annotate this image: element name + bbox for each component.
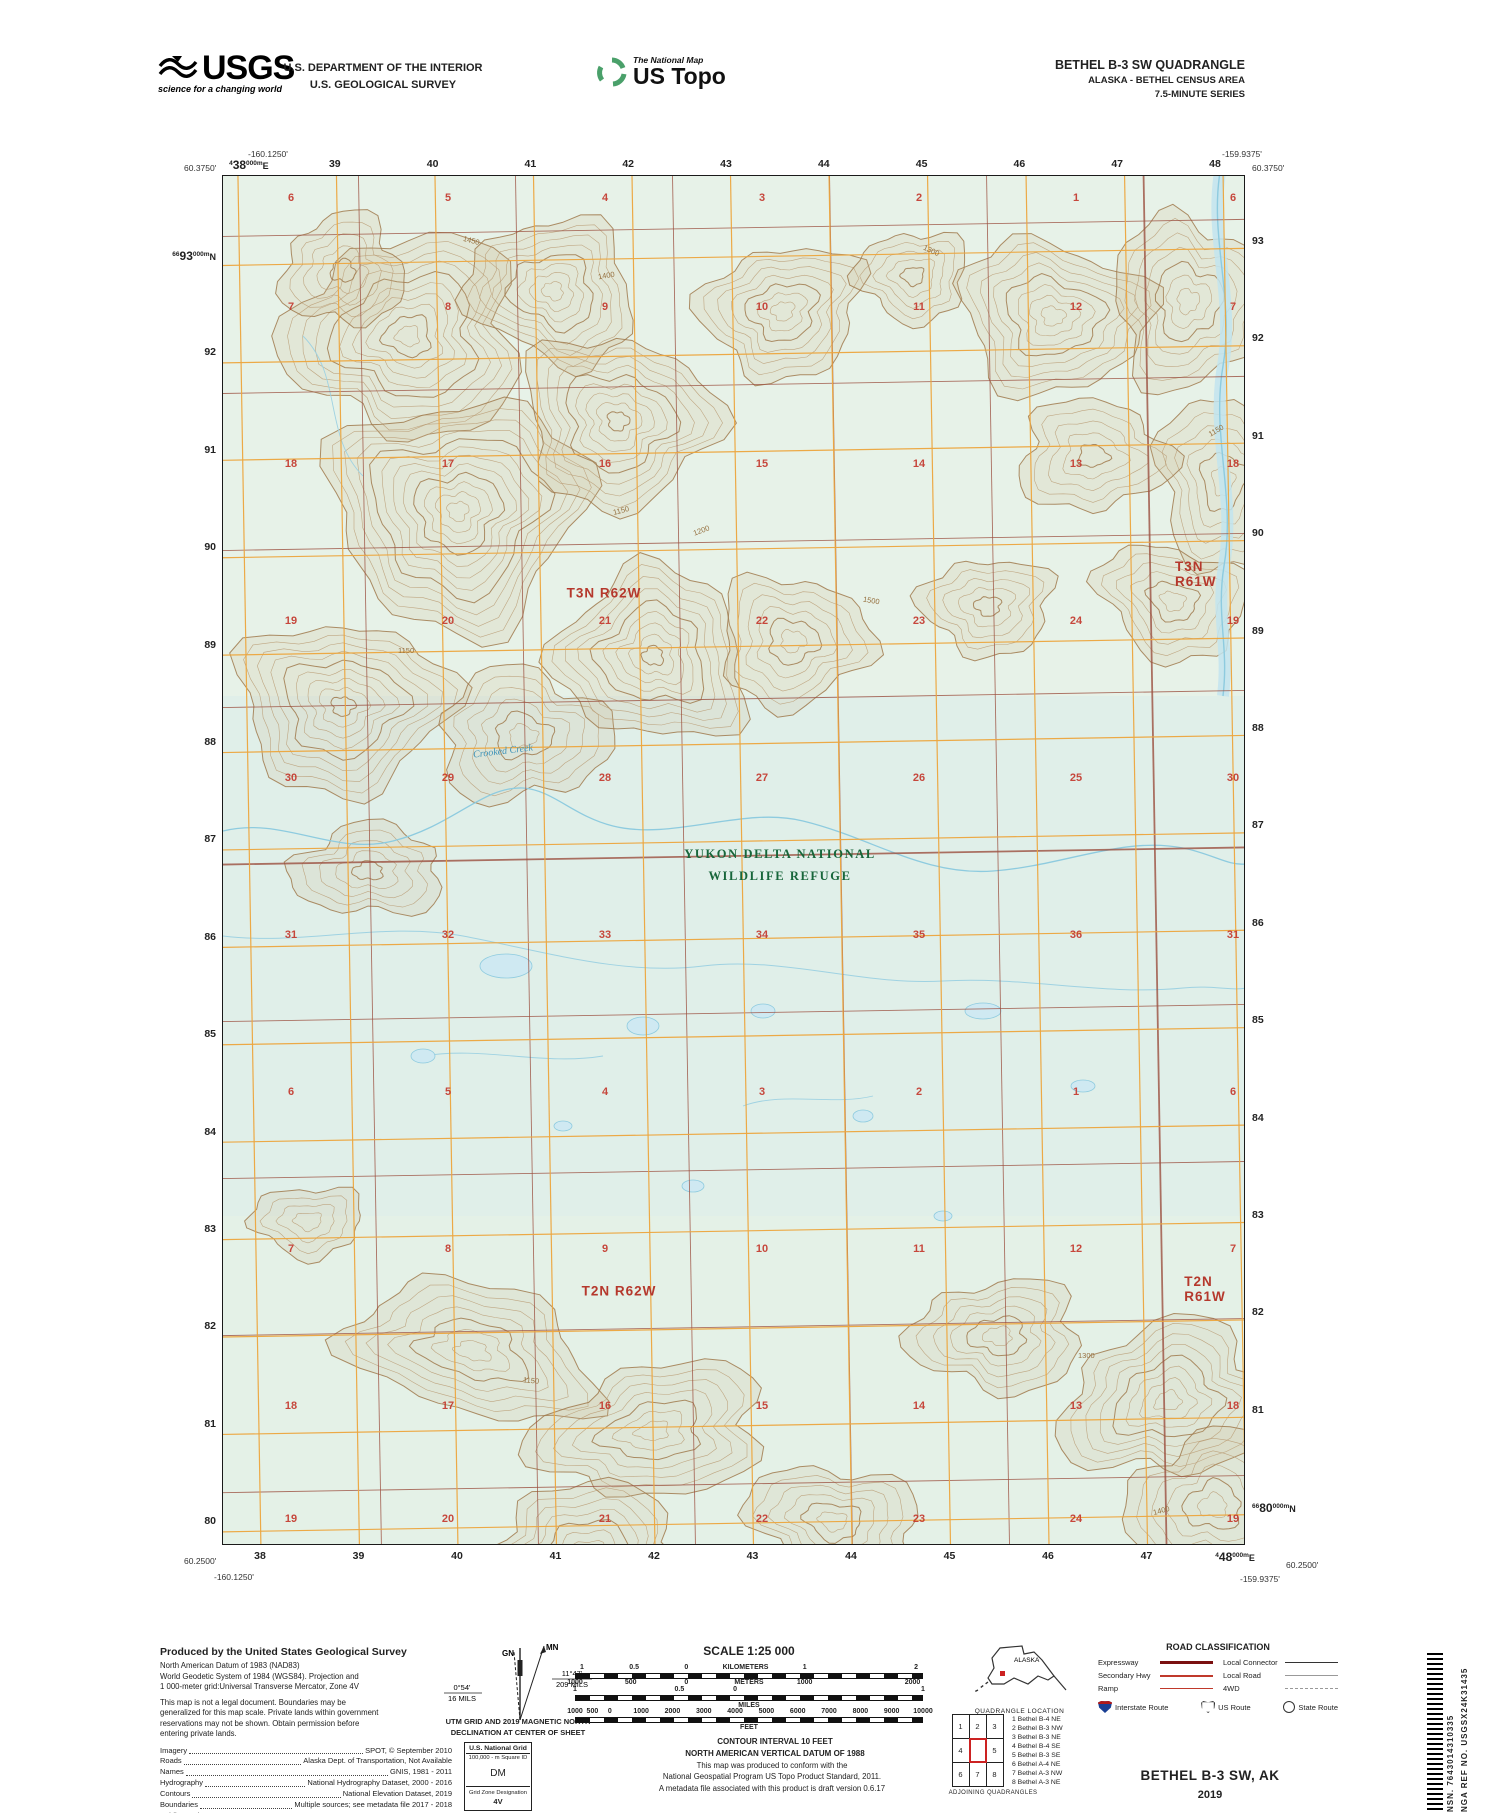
grid-label-bottom: 40 [451,1550,463,1562]
section-number: 15 [756,1400,768,1412]
contour-elevation-label: 1450 [462,234,480,247]
state-locator: ALASKA QUADRANGLE LOCATION [962,1638,1077,1715]
adjoining-list-item: 4 Bethel B-4 SE [1012,1743,1063,1752]
grid-label-top: 40 [427,158,439,170]
conformance-note: This map was produced to conform with th… [592,1760,952,1794]
grid-label-right: 87 [1252,819,1264,831]
interstate-shield-icon [1098,1701,1112,1713]
section-number: 6 [288,192,294,204]
expressway-line-sample [1160,1661,1213,1664]
section-number: 34 [756,929,768,941]
route-shield: US Route [1201,1701,1251,1713]
grid-label-bottom: 38 [254,1550,266,1562]
grid-label-top: 39 [329,158,341,170]
road-class-row: 4WD [1223,1684,1338,1693]
credit-row: BoundariesMultiple sources; see metadata… [160,1800,452,1811]
datum-line: 1 000-meter grid:Universal Transverse Me… [160,1682,452,1693]
contour-elevation-label: 1150 [612,504,630,517]
section-number: 22 [756,1513,768,1525]
contour-elevation-label: 1500 [862,595,880,607]
ustopo-logo: The National Map US Topo [596,55,726,88]
section-number: 30 [1227,772,1239,784]
grid-label-bottom: 45 [944,1550,956,1562]
credit-row: HydrographyNational Hydrography Dataset,… [160,1778,452,1789]
adjoining-cell [969,1738,987,1763]
section-number: 18 [285,458,297,470]
adjoining-list-item: 6 Bethel A-4 NE [1012,1761,1063,1770]
section-number: 4 [602,192,608,204]
quad-series: 7.5-MINUTE SERIES [945,88,1245,102]
section-number: 20 [442,615,454,627]
grid-label-top: 48 [1209,158,1221,170]
fourwd-line-sample [1285,1688,1338,1689]
adjoining-list: 1 Bethel B-4 NE2 Bethel B-3 NW3 Bethel B… [1012,1716,1063,1788]
section-number: 23 [913,1513,925,1525]
grid-label-left: 86 [154,931,216,943]
legal-line: This map is not a legal document. Bounda… [160,1698,452,1709]
section-number: 18 [285,1400,297,1412]
local-line-sample [1285,1675,1338,1676]
road-classification: ROAD CLASSIFICATION ExpresswayLocal Conn… [1098,1642,1338,1713]
production-notes: Produced by the United States Geological… [160,1646,452,1813]
section-number: 3 [759,192,765,204]
section-number: 16 [599,458,611,470]
section-number: 12 [1070,1243,1082,1255]
section-number: 18 [1227,458,1239,470]
section-number: 6 [1230,192,1236,204]
scalebar-feet: 1000500010002000300040005000600070008000… [575,1708,923,1730]
section-number: 31 [1227,929,1239,941]
usng-zone: 4V [466,1797,530,1808]
map-canvas: 6543216789101112718171615141318192021222… [222,175,1245,1545]
produced-title: Produced by the United States Geological… [160,1646,452,1658]
contour-elevation-label: 1150 [1207,423,1225,439]
grid-label-right: 85 [1252,1014,1264,1026]
adjoining-cell: 1 [952,1714,970,1739]
corner-bottom-right-lon: -159.9375' [1240,1574,1280,1584]
section-number: 28 [599,772,611,784]
township-label: T3N R62W [567,586,642,601]
grid-label-left: 84 [154,1126,216,1138]
grid-label-bottom: 39 [353,1550,365,1562]
adjoining-cell: 6 [952,1762,970,1787]
section-number: 19 [1227,615,1239,627]
quadrangle-title: BETHEL B-3 SW QUADRANGLE ALASKA - BETHEL… [945,56,1245,102]
map-sheet: USGS science for a changing world U.S. D… [0,0,1500,1813]
section-number: 21 [599,1513,611,1525]
section-number: 8 [445,301,451,313]
adjoining-cell: 8 [986,1762,1004,1787]
sheet-name: BETHEL B-3 SW, AK [1090,1768,1330,1783]
usng-zone-label: Grid Zone Designation [466,1786,530,1796]
credit-row: NamesGNIS, 1981 - 2011 [160,1767,452,1778]
adjoining-cell: 4 [952,1738,970,1763]
usng-square-id: DM [466,1768,530,1779]
map-label-layer: 6543216789101112718171615141318192021222… [223,176,1244,1544]
contour-note: CONTOUR INTERVAL 10 FEET NORTH AMERICAN … [630,1736,920,1760]
section-number: 5 [445,192,451,204]
section-number: 35 [913,929,925,941]
grid-label-top: 44 [818,158,830,170]
road-class-title: ROAD CLASSIFICATION [1098,1642,1338,1652]
grid-label-top: 438000mE [229,158,269,172]
section-number: 7 [288,1243,294,1255]
contour-elevation-label: 1150 [398,646,414,655]
grid-label-right: 81 [1252,1404,1264,1416]
grid-label-left: 87 [154,833,216,845]
township-label: T3N R61W [1175,559,1221,589]
contour-elevation-label: 1300 [922,243,941,258]
sheet-year: 2019 [1090,1789,1330,1801]
gn-mils: 16 MILS [448,1694,476,1703]
usng-sub: 100,000 - m Square ID [466,1755,530,1761]
grid-label-right: 93 [1252,235,1264,247]
grid-label-top: 43 [720,158,732,170]
grid-label-right: 92 [1252,332,1264,344]
adjoining-list-item: 1 Bethel B-4 NE [1012,1716,1063,1725]
grid-label-right: 89 [1252,625,1264,637]
grid-label-left: 85 [154,1028,216,1040]
grid-label-left: 83 [154,1223,216,1235]
adjoining-list-item: 8 Bethel A-3 NE [1012,1779,1063,1788]
section-number: 13 [1070,458,1082,470]
scale-block: SCALE 1:25 000 10.50KILOMETERS1210005000… [575,1644,923,1730]
grid-label-top: 46 [1014,158,1026,170]
adjoining-caption: ADJOINING QUADRANGLES [938,1790,1048,1796]
section-number: 18 [1227,1400,1239,1412]
section-number: 33 [599,929,611,941]
us-shield-icon [1201,1701,1215,1713]
road-class-row: Secondary Hwy [1098,1671,1213,1680]
grid-label-bottom: 448000mE [1215,1550,1255,1564]
grid-label-bottom: 43 [747,1550,759,1562]
dept-line1: U.S. DEPARTMENT OF THE INTERIOR [278,60,488,77]
adjoining-list-item: 7 Bethel A-3 NW [1012,1770,1063,1779]
road-class-row: Local Connector [1223,1658,1338,1667]
corner-bottom-left-lon: -160.1250' [214,1572,254,1582]
grid-label-top: 42 [622,158,634,170]
grid-label-right: 83 [1252,1209,1264,1221]
contour-elevation-label: 1400 [1152,1504,1170,1517]
mn-label: MN [546,1643,559,1652]
quad-area: ALASKA - BETHEL CENSUS AREA [945,74,1245,88]
contour-elevation-label: 1400 [597,270,615,282]
barcode [1427,1652,1443,1810]
township-label: T2N R61W [1184,1274,1226,1304]
route-shield: Interstate Route [1098,1701,1168,1713]
section-number: 25 [1070,772,1082,784]
grid-label-top: 45 [916,158,928,170]
adjoining-cell: 3 [986,1714,1004,1739]
adjoining-cell: 2 [969,1714,987,1739]
section-number: 16 [599,1400,611,1412]
grid-label-bottom: 44 [845,1550,857,1562]
section-number: 36 [1070,929,1082,941]
section-number: 10 [756,301,768,313]
grid-label-bottom: 47 [1141,1550,1153,1562]
section-number: 7 [1230,301,1236,313]
scale-title: SCALE 1:25 000 [575,1644,923,1658]
section-number: 11 [913,301,925,313]
usng-box: U.S. National Grid 100,000 - m Square ID… [464,1742,532,1811]
section-number: 1 [1073,1086,1079,1098]
grid-label-left: 80 [154,1515,216,1527]
section-number: 26 [913,772,925,784]
grid-label-left: 90 [154,541,216,553]
contour-elevation-label: 1300 [1078,1351,1095,1360]
section-number: 19 [1227,1513,1239,1525]
dept-line2: U.S. GEOLOGICAL SURVEY [278,77,488,94]
grid-label-right: 88 [1252,722,1264,734]
grid-label-bottom: 41 [550,1550,562,1562]
road-class-row: Ramp [1098,1684,1213,1693]
legal-line: entering private lands. [160,1729,452,1740]
section-number: 9 [602,1243,608,1255]
section-number: 27 [756,772,768,784]
credit-row: ContoursNational Elevation Dataset, 2019 [160,1789,452,1800]
grid-label-top: 41 [525,158,537,170]
credit-row: RoadsAlaska Dept. of Transportation, Not… [160,1756,452,1767]
usgs-wave-icon [158,52,198,82]
section-number: 9 [602,301,608,313]
grid-label-left: 88 [154,736,216,748]
section-number: 11 [913,1243,925,1255]
section-number: 13 [1070,1400,1082,1412]
road-class-row: Local Road [1223,1671,1338,1680]
section-number: 17 [442,458,454,470]
refuge-label: YUKON DELTA NATIONALWILDLIFE REFUGE [684,844,876,888]
section-number: 24 [1070,1513,1082,1525]
corner-bottom-right-lat: 60.2500' [1286,1560,1318,1570]
corner-top-left-lat: 60.3750' [184,163,216,173]
section-number: 21 [599,615,611,627]
ustopo-label: US Topo [633,65,726,88]
quad-name: BETHEL B-3 SW QUADRANGLE [945,56,1245,74]
section-number: 12 [1070,301,1082,313]
adjoining-cell: 5 [986,1738,1004,1763]
ustopo-icon [596,56,628,88]
contour-elevation-label: 1150 [523,1375,540,1385]
alaska-outline [988,1646,1054,1684]
department-heading: U.S. DEPARTMENT OF THE INTERIOR U.S. GEO… [278,60,488,94]
section-number: 31 [285,929,297,941]
grid-label-right: 84 [1252,1112,1264,1124]
section-number: 19 [285,1513,297,1525]
grid-label-right: 90 [1252,527,1264,539]
section-number: 22 [756,615,768,627]
nga-ref-number: NGA REF NO. USGSX24K31435 [1460,1652,1469,1812]
connector-line-sample [1285,1662,1338,1663]
grid-label-right: 91 [1252,430,1264,442]
road-class-row: Expressway [1098,1658,1213,1667]
section-number: 30 [285,772,297,784]
grid-label-bottom: 46 [1042,1550,1054,1562]
section-number: 6 [288,1086,294,1098]
scalebar-kilometers-meters: 10.50KILOMETERS1210005000METERS10002000 [575,1664,923,1686]
section-number: 23 [913,615,925,627]
section-number: 14 [913,458,925,470]
section-number: 14 [913,1400,925,1412]
section-number: 8 [445,1243,451,1255]
state-shield-icon [1283,1701,1295,1713]
section-number: 29 [442,772,454,784]
scalebar-miles: 10.501MILES [575,1686,923,1708]
grid-label-left: 82 [154,1320,216,1332]
section-number: 2 [916,1086,922,1098]
section-number: 3 [759,1086,765,1098]
route-shield: State Route [1283,1701,1338,1713]
section-number: 2 [916,192,922,204]
grid-label-left: 89 [154,639,216,651]
section-number: 17 [442,1400,454,1412]
adjoining-list-item: 3 Bethel B-3 NE [1012,1734,1063,1743]
adjoining-list-item: 2 Bethel B-3 NW [1012,1725,1063,1734]
grid-label-left: 6693000mN [154,249,216,263]
corner-top-right-lon: -159.9375' [1222,149,1262,159]
section-number: 24 [1070,615,1082,627]
adjoining-grid: 12345678 [952,1714,1003,1786]
grid-label-right: 86 [1252,917,1264,929]
grid-label-bottom: 42 [648,1550,660,1562]
grid-label-left: 92 [154,346,216,358]
section-number: 32 [442,929,454,941]
township-label: T2N R62W [582,1284,657,1299]
stream-label: Crooked Creek [473,742,534,760]
secondary-line-sample [1160,1675,1213,1677]
grid-label-top: 47 [1111,158,1123,170]
gn-degrees: 0°54' [454,1683,472,1692]
section-number: 7 [288,301,294,313]
quadrangle-location-marker [1000,1671,1005,1676]
section-number: 4 [602,1086,608,1098]
legal-line: reservations may not be shown. Obtain pe… [160,1719,452,1730]
section-number: 19 [285,615,297,627]
ramp-line-sample [1160,1688,1213,1689]
alaska-label: ALASKA [1014,1657,1040,1664]
grid-label-left: 91 [154,444,216,456]
section-number: 6 [1230,1086,1236,1098]
adjoining-cell: 7 [969,1762,987,1787]
corner-top-right-lat: 60.3750' [1252,163,1284,173]
datum-line: World Geodetic System of 1984 (WGS84). P… [160,1672,452,1683]
grid-label-right: 82 [1252,1306,1264,1318]
section-number: 5 [445,1086,451,1098]
section-number: 20 [442,1513,454,1525]
contour-elevation-label: 1200 [692,523,711,537]
grid-label-right: 6680000mN [1252,1501,1296,1515]
adjoining-list-item: 5 Bethel B-3 SE [1012,1752,1063,1761]
section-number: 7 [1230,1243,1236,1255]
sheet-title-block: BETHEL B-3 SW, AK 2019 [1090,1768,1330,1801]
corner-bottom-left-lat: 60.2500' [184,1556,216,1566]
gn-label: GN [502,1649,514,1658]
credit-row: ImagerySPOT, © September 2010 [160,1746,452,1757]
section-number: 10 [756,1243,768,1255]
section-number: 15 [756,458,768,470]
section-number: 1 [1073,192,1079,204]
datum-line: North American Datum of 1983 (NAD83) [160,1661,452,1672]
legal-line: generalized for this map scale. Private … [160,1708,452,1719]
usng-title: U.S. National Grid [466,1745,530,1754]
grid-label-left: 81 [154,1418,216,1430]
nsn-number: NSN. 7643014310335 [1446,1652,1455,1812]
